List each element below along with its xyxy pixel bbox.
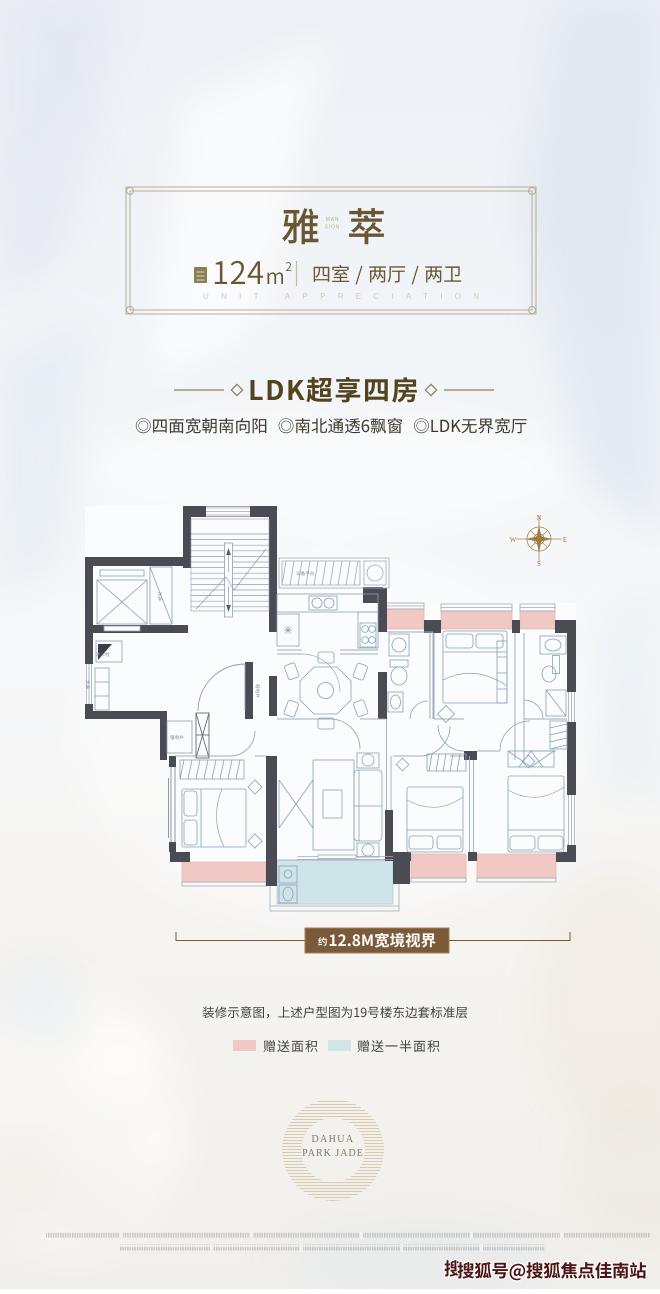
svg-text:SION: SION xyxy=(325,225,340,231)
svg-text:N: N xyxy=(536,514,541,522)
svg-text:PARK JADE: PARK JADE xyxy=(302,1148,364,1159)
svg-text:UNIT APPRECIATION: UNIT APPRECIATION xyxy=(203,292,491,301)
svg-text:MAN: MAN xyxy=(326,217,340,223)
svg-text:S: S xyxy=(537,560,541,568)
svg-text:E: E xyxy=(563,536,567,544)
svg-text:W: W xyxy=(510,536,517,544)
svg-text:DAHUA: DAHUA xyxy=(311,1134,354,1145)
